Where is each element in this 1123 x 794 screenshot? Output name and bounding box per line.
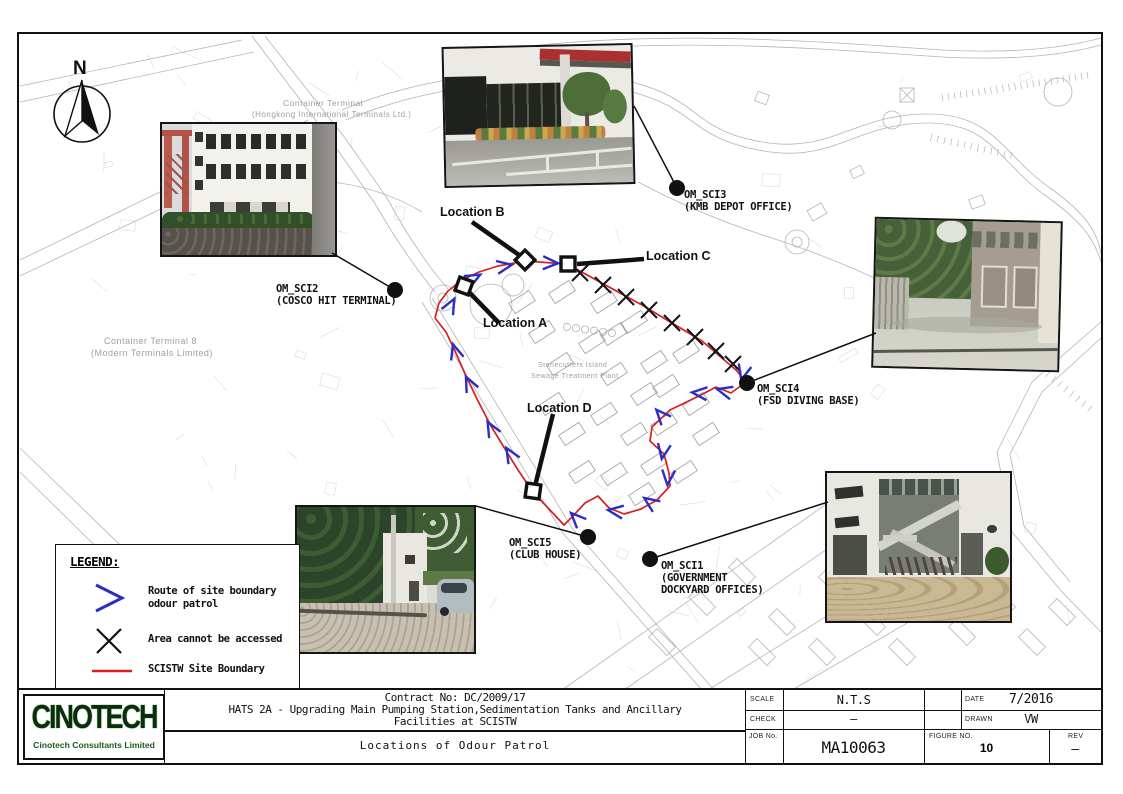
patrol-route-arrow — [447, 342, 464, 360]
figure-value: 10 — [924, 741, 1049, 755]
scale-label: SCALE — [750, 696, 774, 703]
drawing-sheet: Container Terminal(Hongkong Internationa… — [0, 0, 1123, 794]
building-door — [409, 581, 419, 601]
glass-band — [486, 82, 565, 130]
road-marking — [546, 155, 549, 173]
station-label-om_sci3: OM_SCI3 (KMB DEPOT OFFICE) — [684, 189, 792, 213]
map-place-label: Container Terminal 8 — [104, 336, 197, 346]
window-column — [195, 132, 203, 202]
location-square-marker — [455, 277, 473, 295]
patrol-route-arrow — [543, 256, 558, 270]
info-grid: SCALE N.T.S DATE 7/2016 CHECK – DRAWN VW… — [746, 690, 1101, 763]
no-access-x-mark — [595, 277, 611, 293]
company-subtitle: Cinotech Consultants Limited — [25, 740, 163, 750]
photo-leader-line — [650, 502, 828, 559]
patrol-route-arrow — [691, 386, 707, 400]
legend-item-label: Area cannot be accessed — [148, 633, 282, 646]
sky-gaps — [423, 513, 467, 553]
location-leader-line — [535, 414, 553, 486]
north-compass: N — [54, 58, 110, 142]
drawn-value: VW — [961, 712, 1101, 726]
photo-kmb-depot-office — [442, 43, 636, 188]
contract-title-line3: Facilities at SCISTW — [165, 715, 745, 728]
location-square-marker — [561, 257, 575, 271]
building-window — [405, 555, 415, 564]
doorway — [833, 535, 867, 575]
patrol-route-arrow — [641, 493, 661, 512]
cobble-texture — [162, 228, 335, 255]
patrol-route-arrow — [460, 374, 478, 393]
road-marking — [596, 151, 599, 169]
legend-item-label: SCISTW Site Boundary — [148, 663, 264, 676]
patrol-route-arrow — [655, 443, 670, 460]
station-label-om_sci4: OM_SCI4 (FSD DIVING BASE) — [757, 383, 859, 407]
patrol-route-arrow — [716, 383, 734, 399]
no-access-x-mark — [708, 343, 724, 359]
rev-value: – — [1049, 742, 1101, 757]
bush-highlights — [170, 214, 310, 224]
monitoring-station-dot — [669, 180, 685, 196]
check-value: – — [783, 712, 924, 726]
location-label-b: Location B — [440, 205, 505, 219]
photo-leader-line — [476, 506, 588, 537]
north-label: N — [73, 58, 87, 79]
bush — [985, 547, 1009, 575]
location-square-marker — [525, 483, 541, 499]
no-access-x-mark — [664, 315, 680, 331]
contract-title-cell: Contract No: DC/2009/17 HATS 2A - Upgrad… — [165, 690, 746, 763]
white-building — [383, 533, 427, 605]
company-name: CINOTECH — [25, 698, 163, 737]
map-place-label: (Modern Terminals Limited) — [91, 348, 213, 358]
stair-landing — [883, 535, 917, 541]
patrol-route-arrow — [482, 419, 501, 438]
location-leader-line — [472, 222, 522, 257]
patrol-route-arrow — [651, 405, 671, 425]
scale-value: N.T.S — [783, 693, 924, 707]
location-square-marker — [515, 250, 535, 270]
legend-item-label: Route of site boundary odour patrol — [148, 585, 276, 611]
pole — [391, 515, 396, 611]
car-window — [441, 583, 467, 593]
sand-patches — [827, 577, 1010, 621]
photo-cosco-hit-terminal — [160, 122, 337, 257]
car-wheel — [440, 607, 449, 616]
map-place-label: (Hongkong International Terminals Ltd.) — [252, 110, 411, 119]
drawing-frame: Container Terminal(Hongkong Internationa… — [17, 32, 1103, 765]
patrol-route-arrow — [496, 258, 513, 273]
route-arrow-icon — [90, 579, 130, 613]
job-value: MA10063 — [783, 738, 924, 757]
crane-lattice — [166, 154, 188, 194]
doorway — [961, 533, 983, 575]
map-place-label: Sewage Treatment Plant — [531, 373, 619, 380]
station-label-om_sci1: OM_SCI1 (GOVERNMENT DOCKYARD OFFICES) — [661, 560, 763, 596]
site-boundary-route — [435, 261, 746, 525]
patrol-route-arrow — [442, 296, 461, 315]
drawing-title: Locations of Odour Patrol — [165, 739, 745, 752]
station-label-om_sci2: OM_SCI2 (COSCO HIT TERMINAL) — [276, 283, 396, 307]
location-leader-line — [577, 259, 644, 264]
no-access-x-mark — [687, 329, 703, 345]
patrol-route-arrow — [735, 364, 751, 382]
patrol-route-arrow — [607, 504, 624, 519]
window-band — [206, 164, 310, 179]
photo-club-house — [295, 505, 476, 654]
job-label: JOB No. — [749, 733, 778, 740]
photo-leader-line — [634, 106, 677, 188]
bicycles — [885, 557, 957, 575]
patrol-route-arrow — [566, 508, 586, 528]
monitoring-station-dot — [580, 529, 596, 545]
legend-title: LEGEND: — [70, 554, 299, 569]
dark-opening — [444, 76, 487, 135]
garage-door — [981, 265, 1008, 308]
date-value: 7/2016 — [961, 692, 1101, 707]
company-logo: CINOTECH Cinotech Consultants Limited — [23, 694, 165, 760]
patrol-route-arrow — [501, 445, 520, 465]
garage-door — [1013, 266, 1038, 309]
company-logo-cell: CINOTECH Cinotech Consultants Limited — [19, 690, 165, 763]
photo-fsd-diving-base — [871, 217, 1063, 373]
monitoring-station-dot — [739, 375, 755, 391]
no-access-x-mark — [725, 356, 741, 372]
no-access-x-mark — [618, 289, 634, 305]
map-place-label: Stonecutters Island — [538, 362, 607, 369]
monitoring-station-dot — [642, 551, 658, 567]
photo-leader-line — [747, 333, 876, 383]
location-label-d: Location D — [527, 401, 592, 415]
no-access-x-mark — [641, 302, 657, 318]
patrol-route-arrow — [464, 269, 483, 288]
location-label-c: Location C — [646, 249, 711, 263]
pillar — [312, 124, 335, 255]
stairwell-top-glass — [879, 479, 959, 495]
map-place-label: Container Terminal — [283, 98, 363, 108]
window-band — [206, 134, 310, 149]
x-mark-icon — [90, 625, 130, 659]
rev-label: REV — [1068, 733, 1083, 740]
sign — [987, 525, 997, 533]
location-label-a: Location A — [483, 316, 547, 330]
no-access-x-mark — [572, 265, 588, 281]
patrol-route-arrow — [661, 469, 675, 485]
station-label-om_sci5: OM_SCI5 (CLUB HOUSE) — [509, 537, 581, 561]
upper-band — [972, 231, 1042, 249]
photo-government-dockyard-offices — [825, 471, 1012, 623]
check-label: CHECK — [750, 716, 776, 723]
figure-label: FIGURE NO. — [929, 733, 973, 740]
title-block: CINOTECH Cinotech Consultants Limited Co… — [19, 688, 1101, 763]
